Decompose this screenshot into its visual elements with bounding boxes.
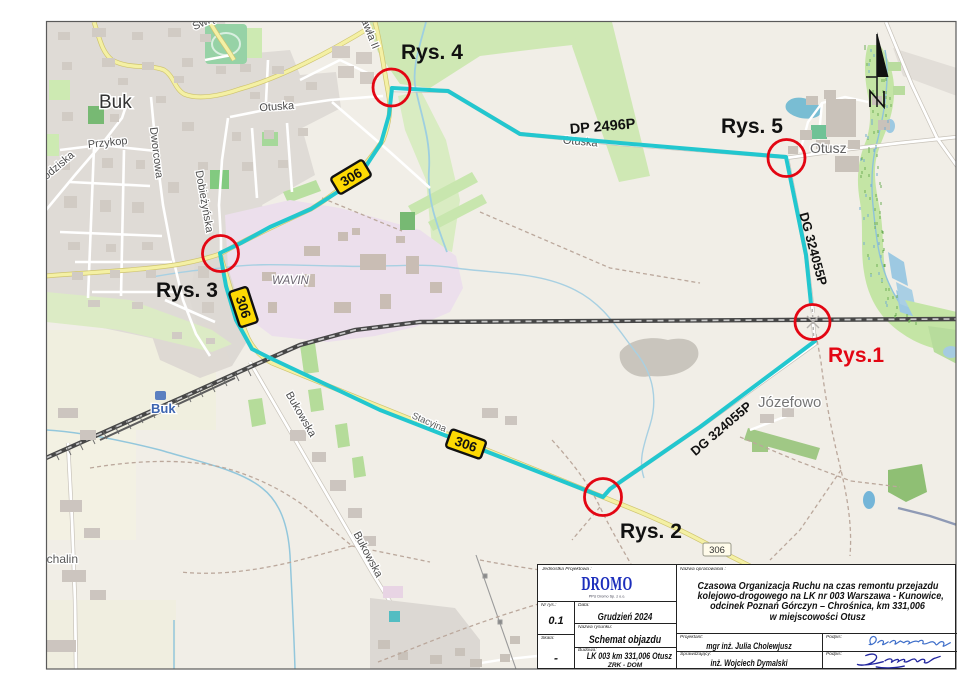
svg-text:Otuska: Otuska xyxy=(259,100,295,114)
svg-text:Buk: Buk xyxy=(99,92,132,113)
svg-text:Rys. 4: Rys. 4 xyxy=(401,41,463,64)
svg-text:Józefowo: Józefowo xyxy=(758,394,821,411)
svg-text:Rys.1: Rys.1 xyxy=(828,344,884,367)
svg-text:WAVIN: WAVIN xyxy=(272,275,310,287)
svg-text:Michalin: Michalin xyxy=(34,552,78,566)
svg-text:Otusz: Otusz xyxy=(810,140,847,156)
svg-text:Rys. 3: Rys. 3 xyxy=(156,279,218,302)
svg-text:Rys. 2: Rys. 2 xyxy=(620,520,682,543)
svg-text:306: 306 xyxy=(709,545,725,556)
svg-text:Rys. 5: Rys. 5 xyxy=(721,115,783,138)
svg-text:Buk: Buk xyxy=(151,401,176,416)
